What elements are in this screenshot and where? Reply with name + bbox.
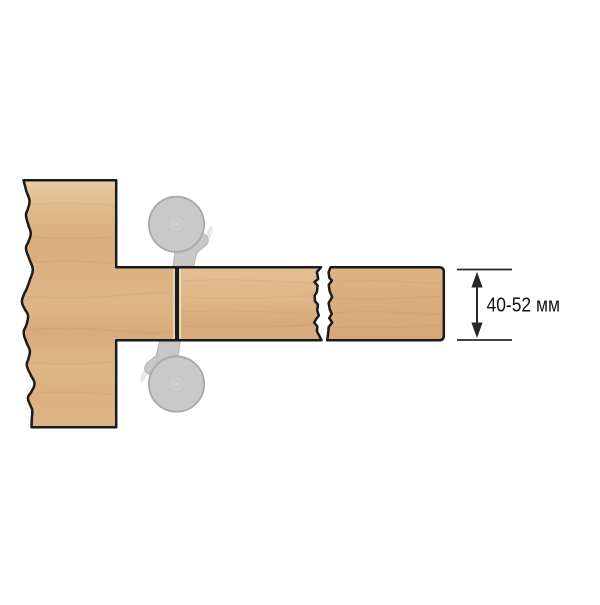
svg-text:40-52 мм: 40-52 мм bbox=[487, 295, 561, 317]
